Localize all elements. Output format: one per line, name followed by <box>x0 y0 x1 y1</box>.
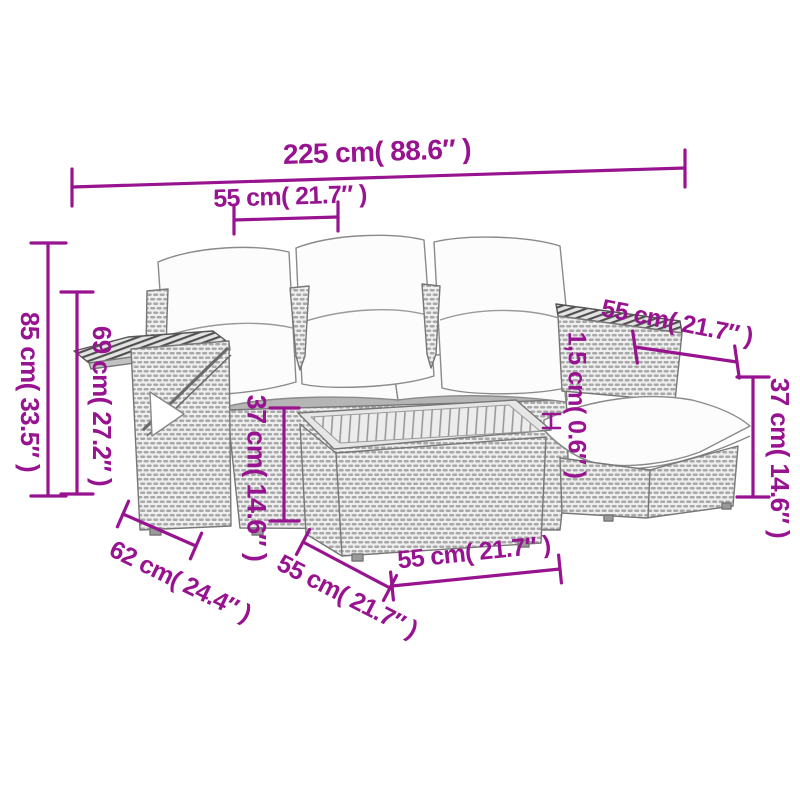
dim-label-cushion-thickness: 1,5 cm( 0.6″ ) <box>564 332 589 479</box>
dim-label-overall-width: 225 cm( 88.6″ ) <box>283 135 472 169</box>
dim-label-stool-height: 37 cm( 14.6″ ) <box>767 378 793 538</box>
dim-label-overall-height: 85 cm( 33.5″ ) <box>17 312 43 472</box>
dimension-diagram: 225 cm( 88.6″ ) 55 cm( 21.7″ ) 85 cm( 33… <box>0 0 800 800</box>
dim-label-seat-width: 55 cm( 21.7″ ) <box>213 182 367 212</box>
dim-label-armrest-height: 69 cm( 27.2″ ) <box>89 326 115 486</box>
dim-line-cushion-thickness <box>543 414 560 428</box>
dim-label-seat-height: 37 cm( 14.6″ ) <box>243 395 270 562</box>
dimension-lines-layer <box>0 0 800 800</box>
dim-line-seat-height <box>270 408 299 521</box>
